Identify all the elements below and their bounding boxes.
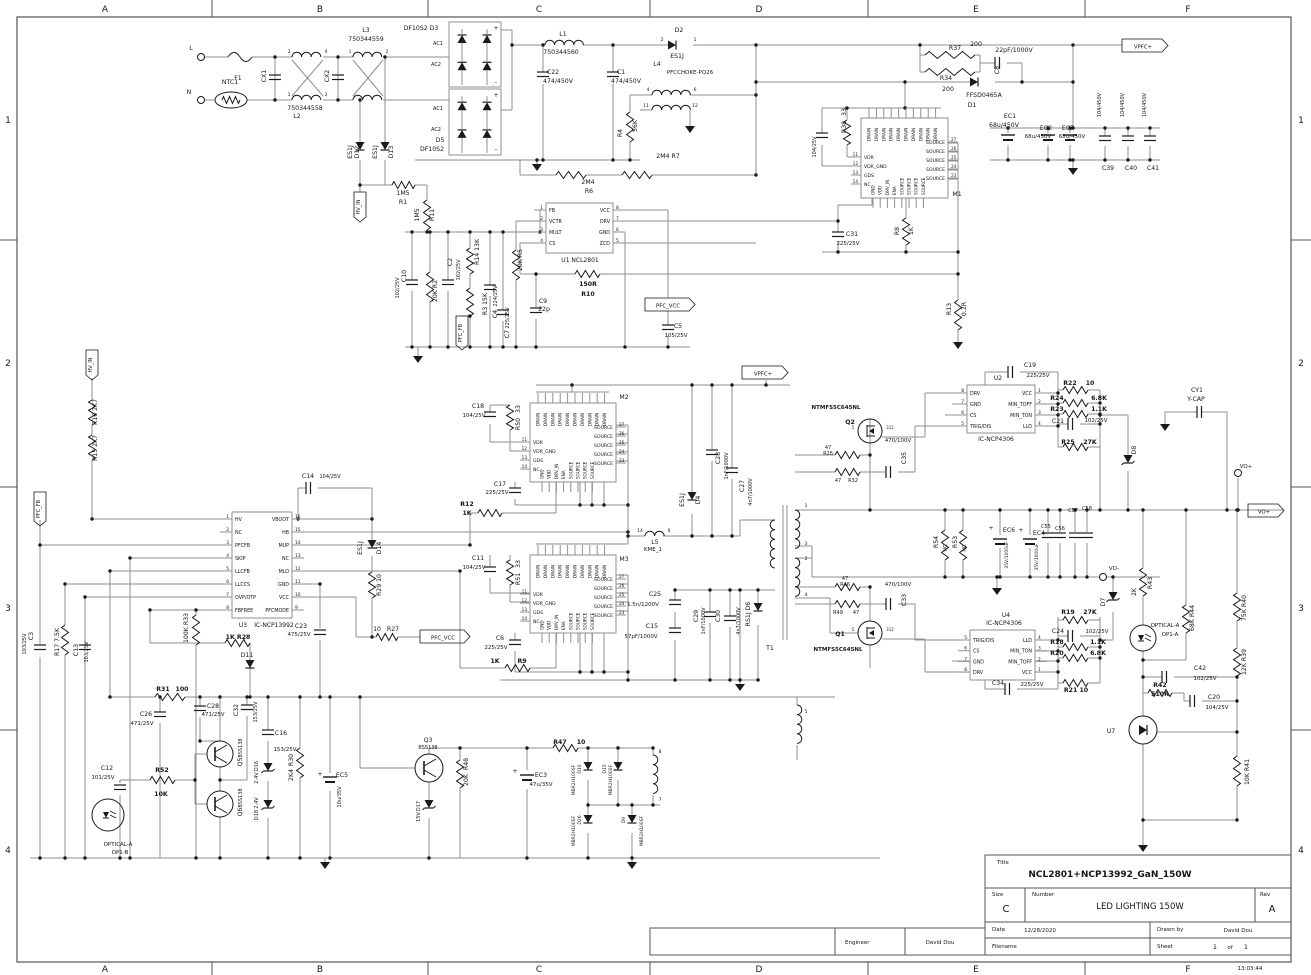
gan-pin-drain: DRAIN: [565, 565, 570, 578]
component-label: OPTICAL-A: [1151, 623, 1180, 629]
junction-dot: [63, 582, 66, 585]
ic-pin-name: VCTR: [549, 219, 563, 225]
junction-dot: [428, 345, 431, 348]
frame-column-label: B: [317, 5, 323, 15]
junction-dot: [1071, 43, 1074, 46]
component-label: T1: [765, 645, 774, 652]
diode-icon: [458, 102, 467, 110]
component-label: 104/450V: [1120, 92, 1126, 117]
component-label: 225/25V: [836, 241, 859, 247]
junction-dot: [918, 43, 921, 46]
component-label: MBR2H100SF: [608, 764, 614, 795]
component-label: 1K R28: [226, 634, 251, 641]
zener-icon: [262, 808, 264, 810]
component-label: R31: [156, 686, 169, 693]
component-label: C42: [1194, 665, 1206, 672]
component-label: 10: [1086, 380, 1095, 387]
ic-pin-name: GND: [278, 582, 289, 588]
junction-dot: [710, 383, 713, 386]
component-label: BSS138: [238, 738, 244, 757]
component-label: C22: [547, 69, 559, 76]
terminal-icon: [1100, 574, 1107, 581]
component-label: 103/25V: [84, 641, 90, 663]
junction-dot: [1235, 508, 1238, 511]
component-label: R18: [1050, 639, 1063, 646]
component-label: AC1: [433, 106, 443, 112]
component-label: L3: [362, 27, 369, 34]
component-label: C10: [401, 270, 408, 282]
component-label: 6.8K: [1090, 650, 1106, 657]
component-label: 104/25V: [319, 474, 341, 480]
resistor-icon: [1140, 568, 1147, 596]
gan-pin-drain: DRAIN: [536, 413, 541, 426]
transistor-icon: [215, 756, 227, 763]
resistor-icon: [1063, 655, 1088, 662]
ic-pin-number: 6: [964, 646, 967, 652]
inductor-icon: [292, 95, 321, 100]
gan-pin-number: 12: [853, 161, 859, 166]
gan-pin-name: GDS: [864, 173, 874, 179]
component-label: R46: [840, 582, 850, 588]
component-label: 312: [886, 627, 894, 632]
schematic-page: FB1VCTR2MULT3CS4VCC8DRV7GND6ZCD5HV1NC2PF…: [0, 0, 1311, 975]
component-label: L4: [653, 61, 660, 68]
gan-pin-name: SOURCE: [583, 612, 588, 630]
junction-dot: [1103, 126, 1106, 129]
ground-icon: [735, 684, 745, 691]
component-label: C27: [739, 480, 746, 492]
component-label: C9: [539, 298, 547, 305]
gan-pin-name: SOURCE: [583, 461, 588, 479]
junction-dot: [1020, 80, 1023, 83]
junction-dot: [358, 98, 361, 101]
junction-dot: [535, 158, 538, 161]
resistor-icon: [507, 405, 514, 430]
sheet-total: 1: [1244, 943, 1248, 951]
junction-dot: [128, 556, 131, 559]
junction-dot: [1235, 730, 1238, 733]
junction-dot: [425, 230, 428, 233]
optocoupler-icon: [110, 815, 116, 818]
component-label: 35V/1000uF: [1004, 541, 1010, 569]
transistor-icon: [424, 770, 436, 777]
component-label: C30: [715, 610, 722, 622]
gan-pin-name: SOURCE: [907, 177, 912, 195]
gan-pin-number: 13: [522, 455, 528, 460]
gan-pin-number: 25: [619, 440, 625, 445]
junction-dot: [458, 746, 461, 749]
component-label: OPTICAL-A: [104, 842, 133, 848]
component-label: R37: [949, 45, 961, 52]
ic-pin-name: CS: [549, 241, 555, 247]
ic-pin-number: 3: [226, 540, 229, 546]
component-label: 47: [835, 478, 841, 484]
component-label: 470/100V: [885, 438, 912, 444]
component-label: Q1: [835, 631, 845, 638]
junction-dot: [198, 695, 201, 698]
junction-dot: [1073, 575, 1076, 578]
junction-dot: [728, 678, 731, 681]
component-label: 470/100V: [885, 582, 912, 588]
ic-pin-number: 7: [226, 592, 229, 598]
gan-pin-number: 11: [522, 437, 528, 442]
component-label: DF10S2 D3: [404, 25, 439, 32]
component-label: 474/450V: [543, 78, 574, 85]
gan-pin-drain: DRAIN: [580, 413, 585, 426]
component-label: 4: [647, 87, 650, 93]
terminal-icon: [198, 54, 205, 61]
zener-icon: [423, 808, 425, 810]
inductor-icon: [645, 531, 664, 536]
ground-icon: [1068, 168, 1078, 175]
component-label: 312: [886, 425, 894, 430]
ic-pin-number: 6: [226, 579, 229, 585]
junction-dot: [468, 543, 471, 546]
component-label: NC: [962, 544, 968, 552]
component-label: 2: [325, 92, 328, 98]
component-label: ES1J: [347, 145, 354, 159]
rev-label: Rev: [1260, 892, 1271, 898]
gan-pin-drain: DRAIN: [867, 128, 872, 141]
junction-dot: [754, 80, 757, 83]
junction-dot: [578, 670, 581, 673]
component-label: CY1: [1191, 387, 1203, 394]
gan-pin-number: 12: [522, 446, 528, 451]
component-label: Q3: [424, 737, 433, 744]
gan-pin-drain: DRAIN: [926, 128, 931, 141]
component-label: 8: [659, 749, 662, 755]
junction-dot: [730, 383, 733, 386]
ic-pin-name: HV: [235, 517, 243, 523]
component-label: 68u/450V: [989, 122, 1020, 129]
sheet-date: 12/28/2020: [1024, 928, 1056, 934]
component-label: C56: [1055, 526, 1065, 532]
component-label: +: [512, 768, 517, 775]
component-label: 100K R33: [183, 613, 190, 643]
gan-pin-name: VDD: [547, 470, 552, 479]
diode-icon: [1109, 592, 1118, 600]
junction-dot: [83, 856, 86, 859]
junction-dot: [198, 739, 201, 742]
component-label: R42: [1153, 682, 1166, 689]
junction-dot: [501, 230, 504, 233]
gan-pin-name: SOURCE: [590, 461, 595, 479]
gan-pin-drain: DRAIN: [587, 565, 592, 578]
gan-pin-name: SOURCE: [594, 577, 613, 583]
component-label: IC-NCP4306: [978, 436, 1014, 443]
junction-dot: [943, 508, 946, 511]
component-label: 12: [692, 103, 698, 109]
optocoupler-icon: [92, 799, 124, 831]
component-label: M2: [619, 394, 628, 401]
junction-dot: [1148, 126, 1151, 129]
junction-dot: [616, 746, 619, 749]
junction-dot: [410, 230, 413, 233]
ic-pin-name: LLCCS: [235, 582, 250, 588]
junction-dot: [118, 856, 121, 859]
junction-dot: [1085, 575, 1088, 578]
component-label: 20K R5: [517, 249, 524, 271]
junction-dot: [358, 183, 361, 186]
component-label: 27K: [1083, 609, 1097, 616]
sheet-no: 1: [1213, 943, 1217, 951]
resistor-icon: [835, 469, 860, 476]
junction-dot: [1235, 818, 1238, 821]
component-label: NTC1: [222, 79, 238, 86]
component-label: 102/25V: [395, 277, 401, 299]
gan-pin-drain: DRAIN: [595, 565, 600, 578]
resistor-icon: [1234, 593, 1241, 621]
component-label: R1: [399, 199, 407, 206]
component-label: R27: [387, 626, 399, 633]
component-label: R53: [952, 536, 959, 548]
junction-dot: [468, 345, 471, 348]
component-label: 1: [694, 37, 697, 43]
transistor-icon: [424, 759, 436, 766]
resistor-icon: [556, 172, 586, 179]
ic-pin-number: 11: [295, 579, 301, 585]
component-label: 10K: [154, 791, 168, 798]
junction-dot: [1056, 659, 1059, 662]
component-label: C21: [1052, 418, 1064, 425]
gan-pin-number: 23: [951, 173, 957, 178]
component-label: C14: [302, 473, 314, 480]
component-label: R23: [1050, 406, 1063, 413]
diode-icon: [483, 102, 492, 110]
gan-pin-name: ENA: [561, 470, 566, 479]
junction-dot: [328, 856, 331, 859]
diode-icon: [246, 660, 255, 668]
junction-dot: [956, 250, 959, 253]
component-label: 22pF/1000V: [995, 47, 1033, 54]
component-label: R29 10: [376, 574, 383, 596]
junction-dot: [1058, 575, 1061, 578]
ic-pin-name: GND: [973, 659, 984, 665]
component-label: 14: [637, 528, 643, 534]
component-label: N: [187, 89, 192, 96]
junction-dot: [458, 569, 461, 572]
component-label: C16: [275, 730, 287, 737]
gan-pin-name: GND: [540, 469, 545, 479]
junction-dot: [738, 588, 741, 591]
junction-dot: [1141, 508, 1144, 511]
component-label: RS1J D6: [745, 602, 752, 627]
component-label: 4n7/1000V: [748, 478, 754, 506]
junction-dot: [1098, 413, 1101, 416]
ic-pin-number: 5: [961, 421, 964, 427]
junction-dot: [525, 746, 528, 749]
sheet-number: LED LIGHTING 150W: [1096, 902, 1184, 912]
component-label: C31: [846, 231, 858, 238]
zener-icon: [273, 769, 275, 771]
resistor-icon: [622, 172, 652, 179]
component-label: 474/450V: [611, 78, 642, 85]
diode-icon: [458, 130, 467, 138]
resistor-icon: [478, 510, 502, 517]
component-label: 33: [515, 560, 522, 568]
gan-pin-name: SOURCE: [594, 586, 613, 592]
component-label: 102/25V: [1085, 629, 1108, 635]
ic-pin-name: SKIP: [235, 556, 246, 562]
component-label: 10K R41: [1244, 759, 1251, 785]
junction-dot: [673, 678, 676, 681]
ic-pin-name: DRV: [973, 670, 984, 676]
junction-dot: [336, 98, 339, 101]
junction-dot: [468, 230, 471, 233]
component-label: 224/25V: [493, 285, 499, 307]
gan-pin-name: VDR_GND: [864, 164, 887, 170]
net-label-text: HV_IN: [88, 357, 94, 372]
component-label: 33: [841, 108, 848, 116]
resistor-icon: [575, 271, 600, 278]
junction-dot: [1141, 658, 1144, 661]
component-label: D12: [354, 146, 361, 159]
component-label: R30: [288, 754, 295, 766]
component-label: KME_1: [644, 547, 662, 553]
schematic-canvas: FB1VCTR2MULT3CS4VCC8DRV7GND6ZCD5HV1NC2PF…: [0, 0, 1311, 975]
component-label: C57: [1068, 508, 1078, 514]
gan-pin-name: SOURCE: [590, 612, 595, 630]
component-label: C5: [674, 323, 682, 330]
junction-dot: [836, 250, 839, 253]
inductor-icon: [353, 52, 382, 57]
junction-dot: [578, 503, 581, 506]
ground-icon: [1138, 845, 1148, 852]
component-label: Y-CAP: [1186, 396, 1205, 403]
component-label: R43: [1147, 577, 1154, 589]
diode-icon: [264, 763, 273, 771]
winding-icon: [653, 755, 658, 793]
component-label: 20K: [463, 773, 470, 786]
junction-dot: [193, 778, 196, 781]
component-label: D18: [254, 810, 260, 820]
component-label: 102/25V: [1084, 418, 1107, 424]
component-label: 104/25V: [462, 413, 485, 419]
resistor-icon: [1234, 648, 1241, 676]
gan-pin-number: 26: [951, 146, 957, 151]
junction-dot: [1098, 508, 1101, 511]
component-label: 1: [349, 49, 352, 55]
component-label: EC7: [1062, 125, 1074, 132]
resistor-icon: [297, 748, 304, 778]
component-label: 471/25V: [201, 712, 224, 718]
ic-pin-name: LLD: [1023, 638, 1032, 644]
frame-column-label: E: [973, 965, 979, 975]
component-label: C19: [1024, 362, 1036, 369]
transistor-icon: [415, 754, 443, 782]
component-label: 5: [852, 425, 855, 430]
gan-pin-drain: DRAIN: [543, 413, 548, 426]
frame-column-label: E: [973, 5, 979, 15]
component-label: R32: [848, 478, 858, 484]
ic-pin-name: PFCFB: [235, 543, 250, 549]
engineer-block: [650, 928, 835, 955]
gan-pin-name: SOURCE: [926, 167, 945, 173]
gan-pin-drain: DRAIN: [573, 413, 578, 426]
title-label: Title: [996, 860, 1009, 866]
ic-pin-name: MIN_TON: [1010, 413, 1032, 419]
gan-pin-drain: DRAIN: [602, 565, 607, 578]
ic-pin-name: TRIG/DIS: [972, 638, 994, 644]
component-label: R50: [515, 418, 522, 430]
gan-pin-name: VDR_GND: [533, 601, 556, 607]
junction-dot: [1056, 413, 1059, 416]
component-label: 2: [805, 556, 808, 562]
ground-icon: [1160, 424, 1170, 431]
gan-pin-drain: DRAIN: [595, 413, 600, 426]
component-label: NTMFS5C645NL: [814, 647, 863, 653]
diode-icon: [458, 35, 467, 43]
resistor-icon: [835, 601, 860, 608]
component-label: D7: [1100, 598, 1107, 607]
junction-dot: [756, 678, 759, 681]
junction-dot: [868, 453, 871, 456]
junction-dot: [428, 230, 431, 233]
ic-pin-name: CS: [973, 649, 979, 655]
component-label: R51: [515, 573, 522, 585]
component-label: D2: [675, 27, 684, 34]
gan-pin-name: DRV_IN: [885, 180, 890, 195]
component-label: C2: [447, 258, 454, 266]
resistor-icon: [507, 560, 514, 585]
junction-dot: [708, 678, 711, 681]
ic-pin-name: PFCMODE: [265, 608, 289, 614]
component-label: R8: [894, 227, 901, 235]
junction-dot: [690, 534, 693, 537]
resistor-icon: [222, 97, 240, 104]
resistor-icon: [150, 777, 175, 784]
inductor-icon: [652, 90, 690, 95]
component-label: 68u/450V: [1059, 134, 1086, 140]
resistor-icon: [467, 248, 474, 274]
component-label: L5: [651, 539, 658, 546]
junction-dot: [1028, 508, 1031, 511]
junction-dot: [586, 803, 589, 806]
component-label: C25: [649, 591, 661, 598]
gan-pin-number: 24: [951, 164, 957, 169]
component-label: 750344560: [543, 49, 578, 56]
gan-pin-name: GND: [871, 185, 876, 195]
junction-dot: [868, 585, 871, 588]
component-label: R34: [940, 75, 952, 82]
component-label: R19: [1061, 609, 1074, 616]
junction-dot: [626, 503, 629, 506]
ic-pin-number: 8: [964, 667, 967, 673]
diode-icon: [628, 815, 637, 823]
gan-pin-drain: DRAIN: [536, 565, 541, 578]
component-label: U4: [1002, 612, 1010, 619]
gan-pin-drain: DRAIN: [918, 128, 923, 141]
component-label: U7: [1107, 728, 1116, 735]
frame-row-label: 3: [5, 604, 11, 614]
optocoupler-icon: [110, 811, 116, 814]
frame-column-label: B: [317, 965, 323, 975]
ic-pin-number: 4: [1038, 421, 1041, 427]
diode-icon: [483, 130, 492, 138]
component-label: 1K: [462, 510, 471, 517]
component-label: CX1: [261, 70, 268, 83]
gan-pin-name: SOURCE: [594, 443, 613, 449]
junction-dot: [1046, 158, 1049, 161]
gan-pin-number: 11: [853, 152, 859, 157]
diode-icon: [425, 800, 434, 808]
junction-dot: [328, 695, 331, 698]
terminal-icon: [198, 97, 205, 104]
mosfet-icon: [869, 630, 874, 636]
junction-dot: [1046, 508, 1049, 511]
ic-pin-number: 1: [540, 205, 543, 211]
ic-pin-number: 4: [1038, 635, 1041, 641]
